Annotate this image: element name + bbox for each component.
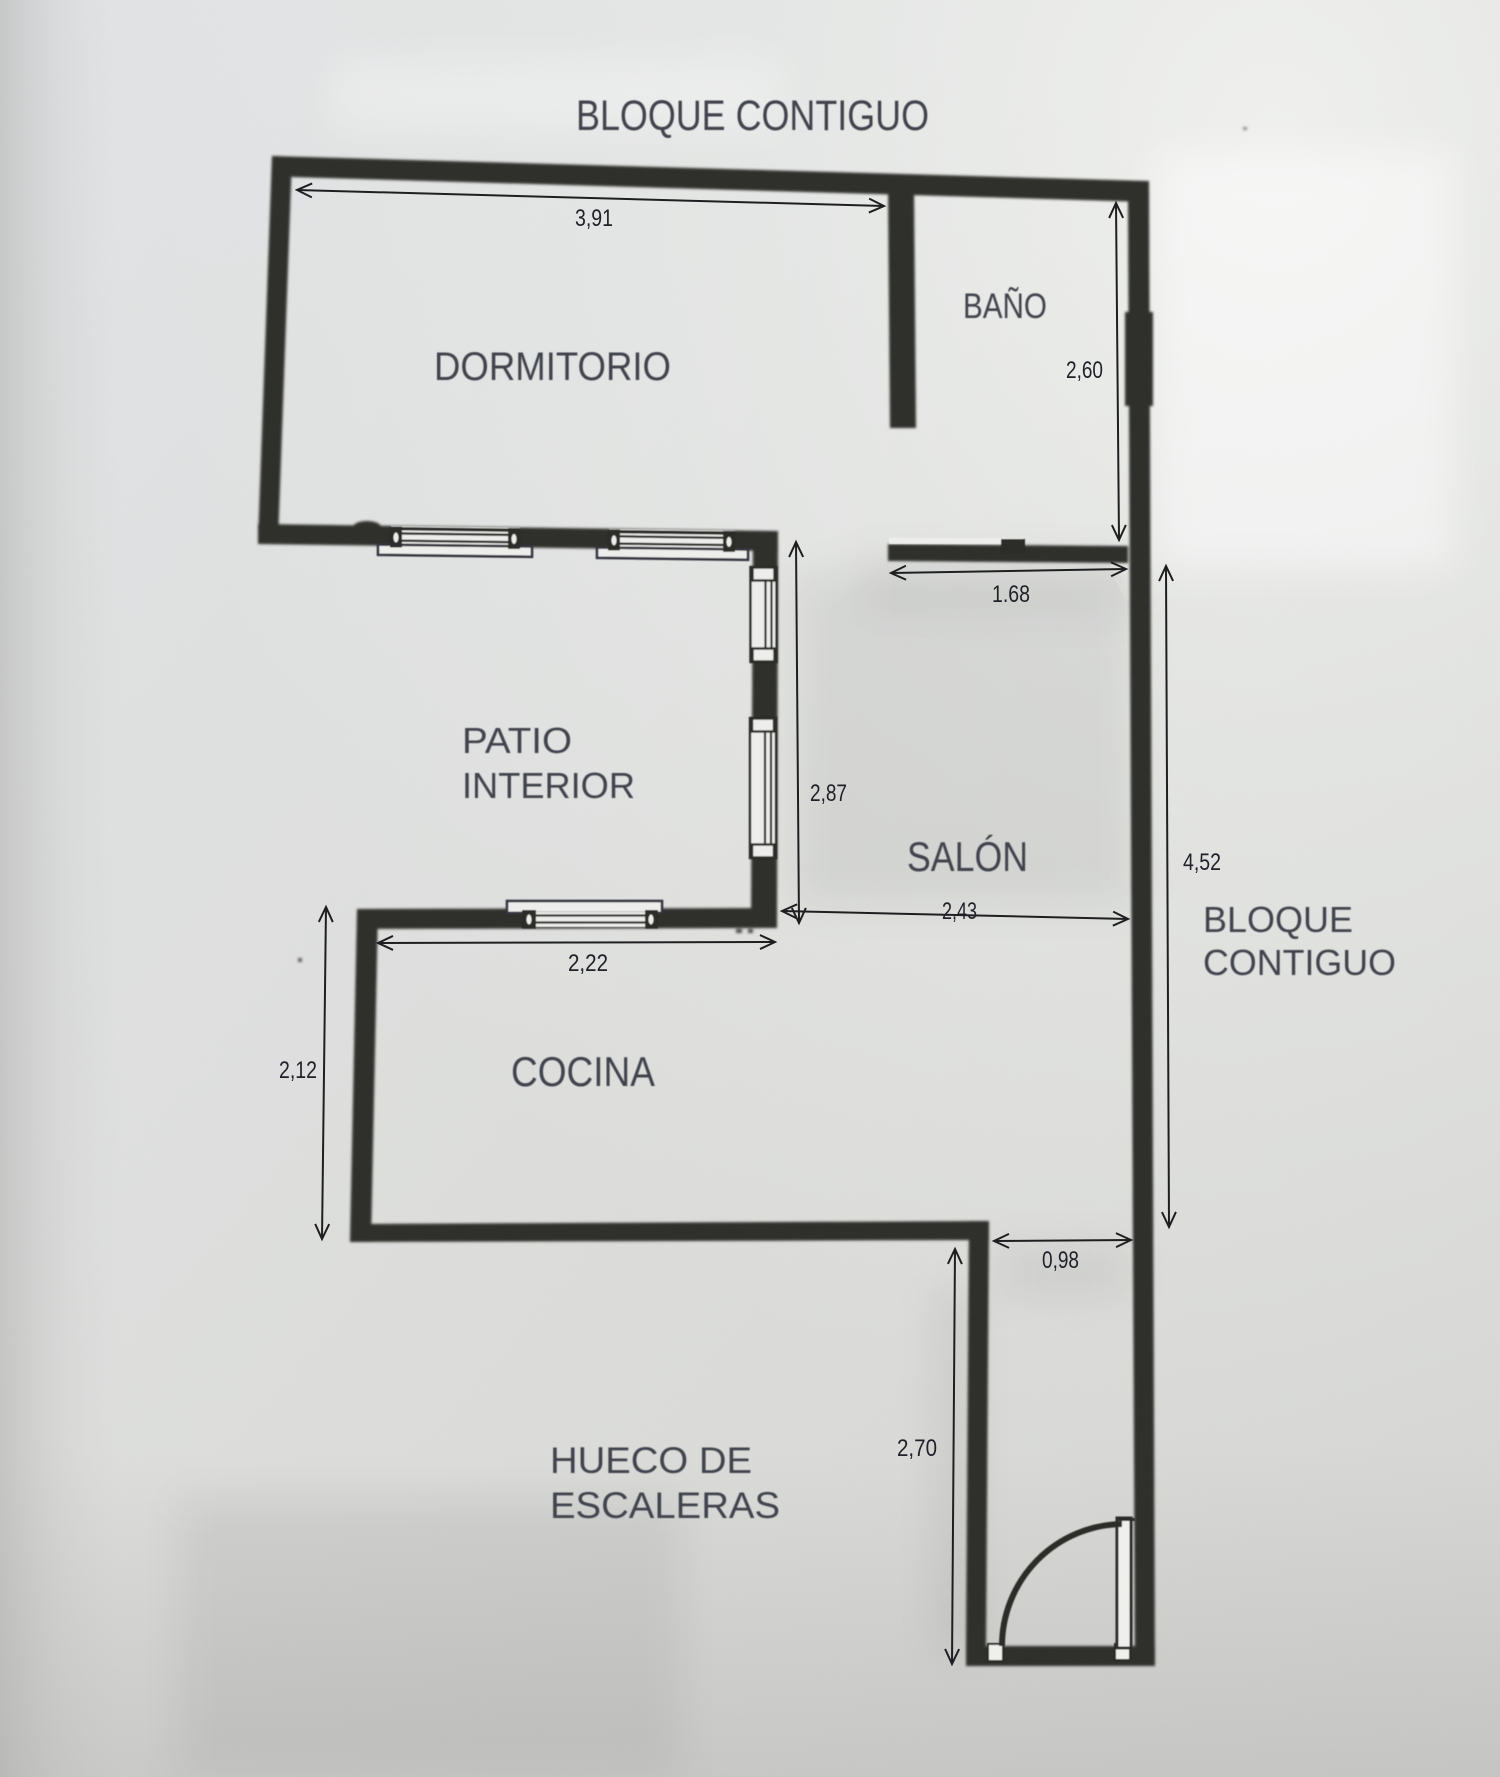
- svg-text:SALÓN: SALÓN: [907, 833, 1028, 880]
- svg-text:CONTIGUO: CONTIGUO: [1203, 942, 1396, 983]
- svg-text:2,43: 2,43: [942, 898, 977, 925]
- svg-text:2,22: 2,22: [568, 950, 608, 977]
- svg-text:2,70: 2,70: [897, 1435, 937, 1462]
- svg-text:BLOQUE CONTIGUO: BLOQUE CONTIGUO: [576, 92, 929, 140]
- svg-text:3,91: 3,91: [575, 205, 613, 232]
- svg-text:PATIO: PATIO: [462, 720, 572, 761]
- svg-text:2,60: 2,60: [1066, 357, 1103, 384]
- svg-text:INTERIOR: INTERIOR: [462, 765, 635, 806]
- svg-text:HUECO DE: HUECO DE: [550, 1440, 752, 1481]
- svg-text:DORMITORIO: DORMITORIO: [434, 345, 671, 389]
- svg-text:2,12: 2,12: [279, 1057, 317, 1084]
- svg-text:0,98: 0,98: [1042, 1247, 1079, 1274]
- svg-text:ESCALERAS: ESCALERAS: [550, 1485, 780, 1526]
- svg-text:COCINA: COCINA: [511, 1048, 655, 1095]
- svg-text:2,87: 2,87: [810, 780, 847, 807]
- svg-text:BLOQUE: BLOQUE: [1203, 899, 1353, 940]
- svg-text:1.68: 1.68: [992, 581, 1030, 608]
- svg-text:4,52: 4,52: [1183, 849, 1221, 876]
- svg-text:BAÑO: BAÑO: [963, 287, 1047, 326]
